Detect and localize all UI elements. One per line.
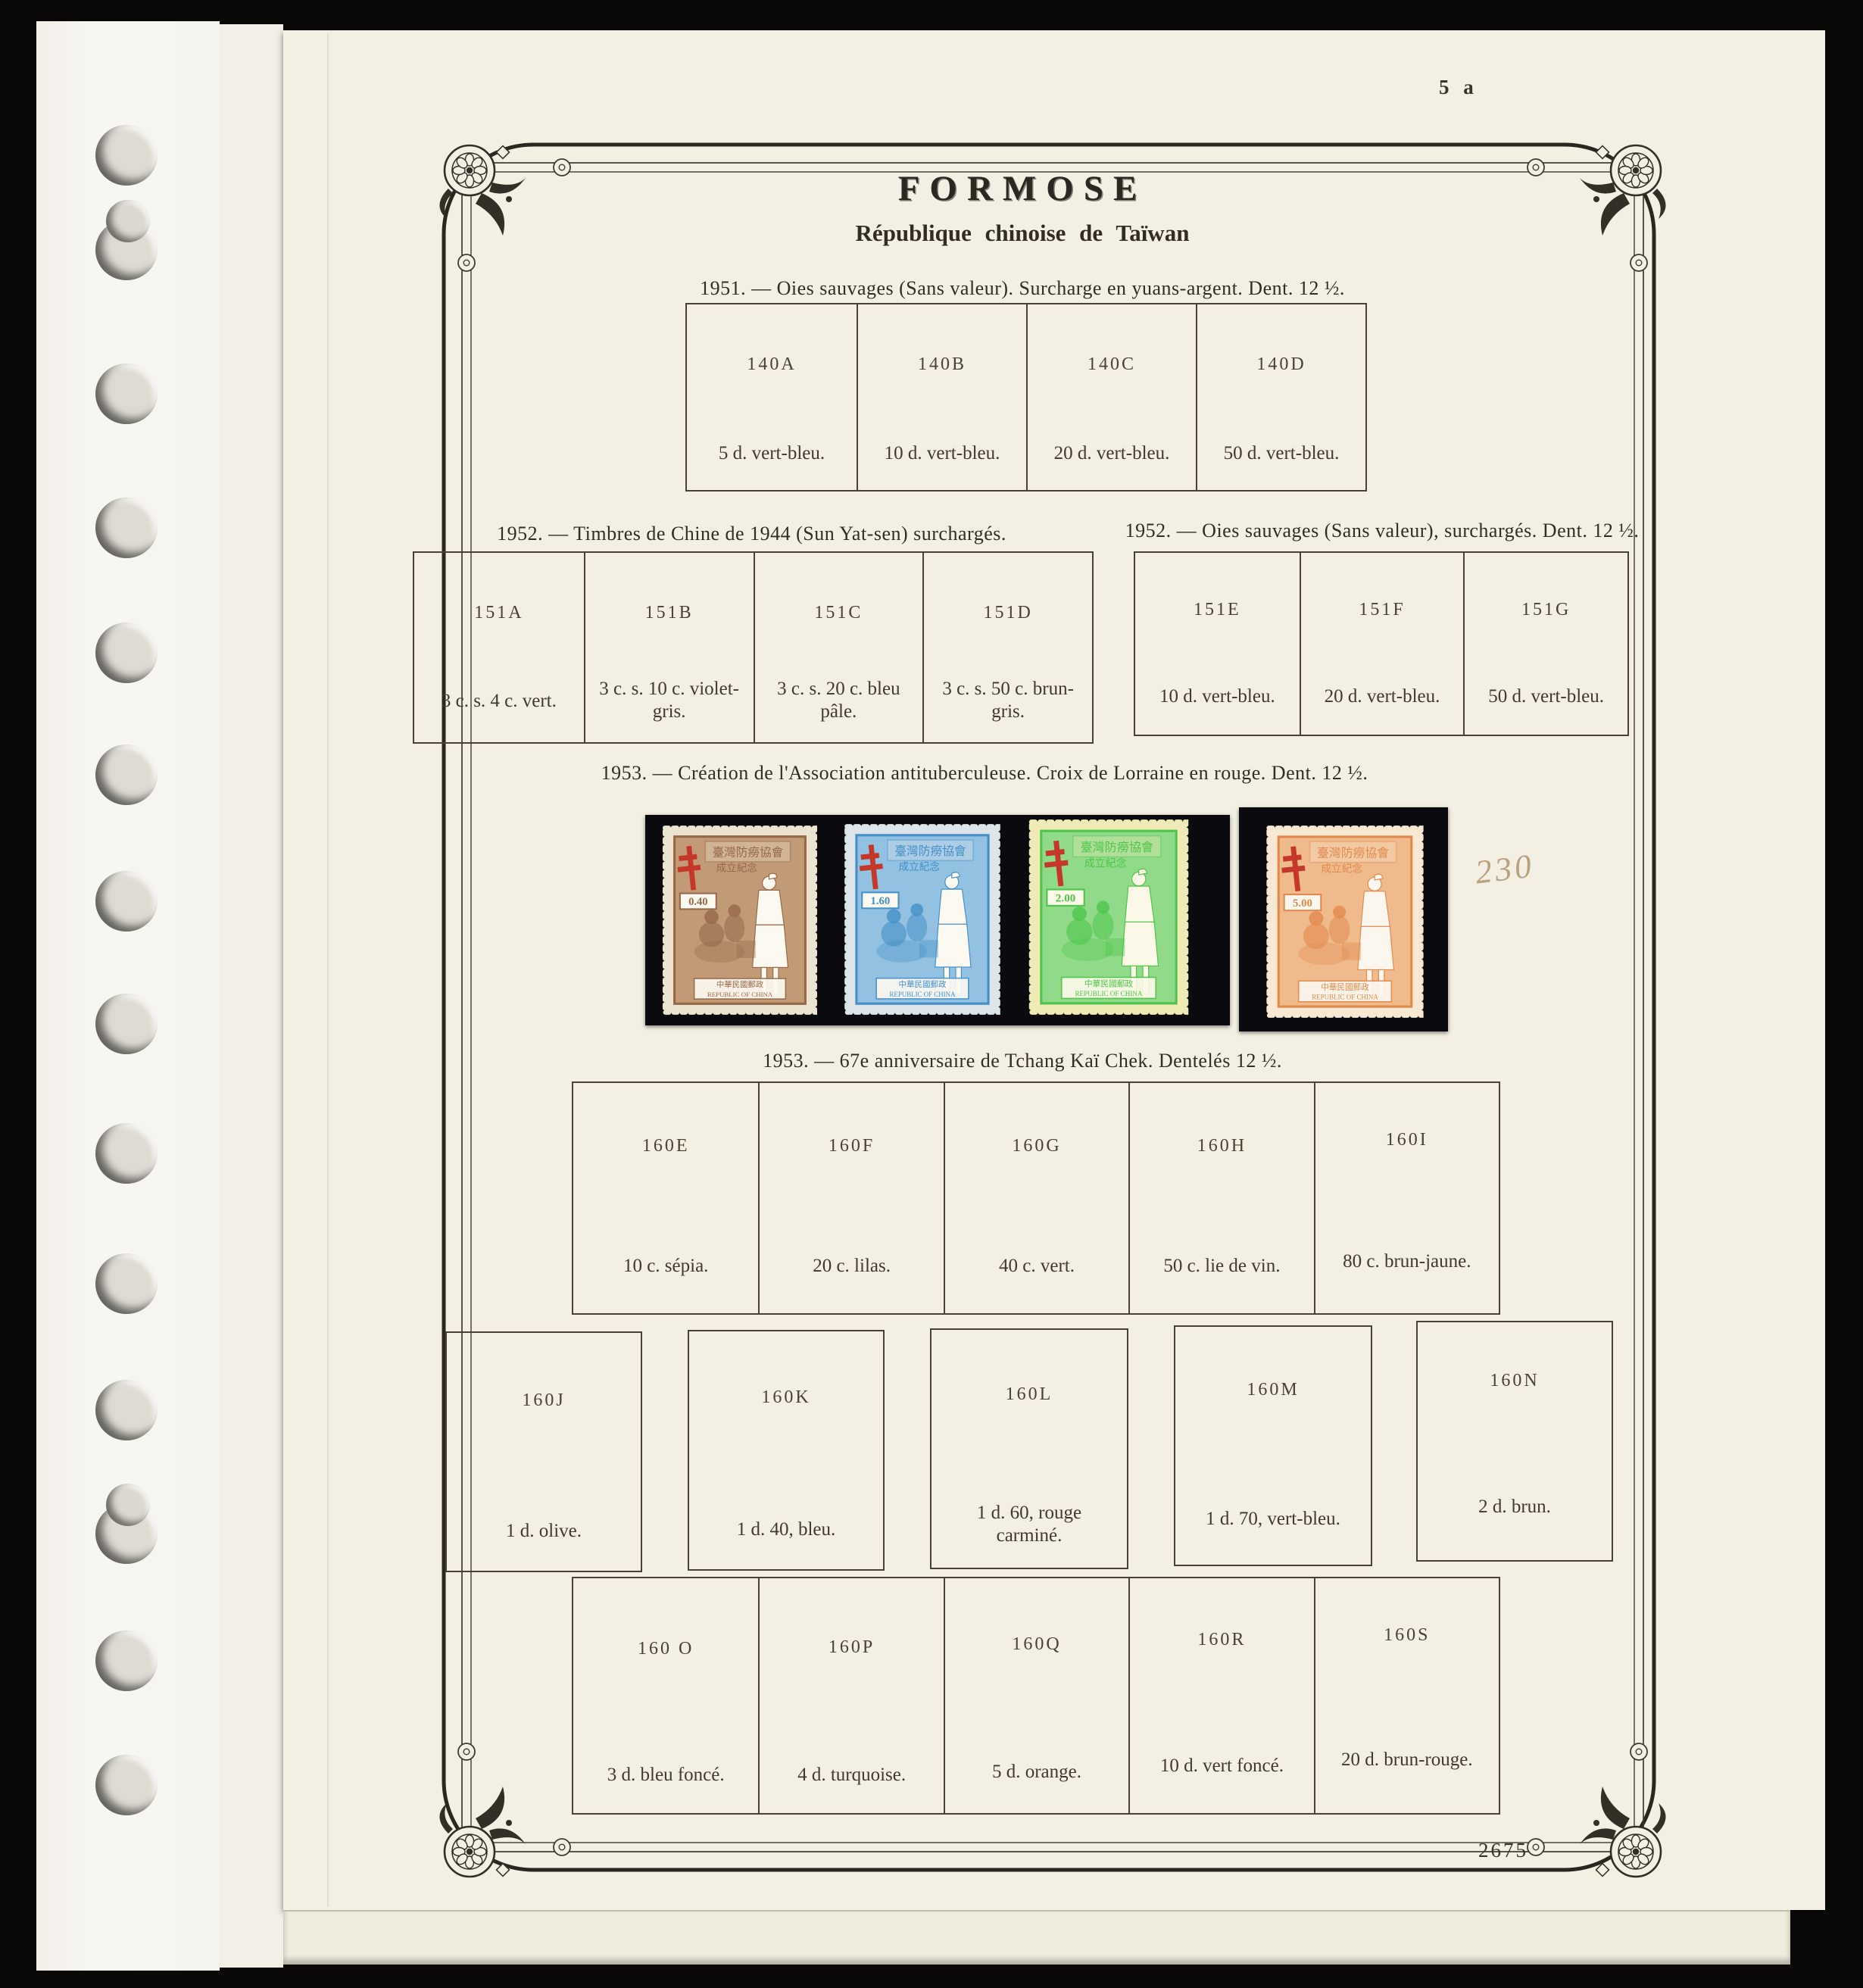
catalog-code: 160L: [931, 1384, 1127, 1405]
stamp-cell: 160I 80 c. brun-jaune.: [1314, 1083, 1499, 1313]
stamp-caption: 50 c. lie de vin.: [1143, 1255, 1301, 1278]
stamp-cell: 140D 50 d. vert-bleu.: [1196, 304, 1365, 490]
stamp-caption: 5 d. vert-bleu.: [699, 442, 845, 465]
stamp-box: 160K 1 d. 40, bleu.: [688, 1330, 885, 1571]
stamp-caption: 4 d. turquoise.: [772, 1764, 931, 1787]
stamp-box: 160L 1 d. 60, rouge carminé.: [930, 1328, 1128, 1569]
catalog-code: 160E: [573, 1136, 758, 1156]
stamp-caption: 50 d. vert-bleu.: [1476, 685, 1616, 708]
stamp-cell: 160E 10 c. sépia.: [573, 1083, 758, 1313]
stamp-inscription-top2: 成立紀念: [1321, 862, 1362, 874]
stamp-orange: 臺灣防癆協會 成立紀念 5.00 中華民國郵政 REPUBLIC OF CHI: [1263, 824, 1427, 1019]
catalog-code: 160G: [945, 1136, 1128, 1156]
page-title: FORMOSE: [454, 168, 1590, 209]
stamp-caption: 20 d. vert-bleu.: [1040, 442, 1184, 465]
catalog-code: 160F: [760, 1136, 943, 1156]
stamp-box: 160M 1 d. 70, vert-bleu.: [1174, 1325, 1372, 1566]
stamp-grid-1952-sunyatsen: 151A 3 c. s. 4 c. vert. 151B 3 c. s. 10 …: [413, 551, 1094, 744]
stamp-grid-1952-oies: 151E 10 d. vert-bleu. 151F 20 d. vert-bl…: [1134, 551, 1629, 736]
stamp-brown: 臺灣防癆協會 成立紀念 0.40 中華民國郵政 REPUBLIC OF CHI: [660, 824, 819, 1016]
stamp-caption: 3 d. bleu foncé.: [586, 1764, 745, 1787]
catalog-code: 151C: [755, 603, 923, 623]
stamp-cell: 160 O 3 d. bleu foncé.: [573, 1578, 758, 1813]
catalog-code: 160S: [1315, 1625, 1499, 1646]
plate-number: 2675: [1478, 1839, 1584, 1862]
catalog-code: 160N: [1418, 1371, 1612, 1391]
stamp-value: 1.60: [871, 895, 891, 907]
stamp-grid-1951: 140A 5 d. vert-bleu. 140B 10 d. vert-ble…: [685, 303, 1367, 492]
stamp-inscription-top: 臺灣防癆協會: [713, 846, 784, 860]
stamp-caption: 1 d. 40, bleu.: [703, 1518, 869, 1541]
stamp-caption: 80 c. brun-jaune.: [1328, 1250, 1486, 1273]
stamp-inscription-en: REPUBLIC OF CHINA: [1312, 994, 1378, 1001]
stamp-caption: 3 c. s. 10 c. violet-gris.: [597, 678, 741, 722]
corner-rosette-ornament: [439, 1787, 526, 1877]
section-header-1952-oies: 1952. — Oies sauvages (Sans valeur), sur…: [1091, 520, 1674, 542]
stamp-cell: 160R 10 d. vert foncé.: [1128, 1578, 1313, 1813]
border-bead: [458, 1743, 475, 1760]
stamp-inscription-cn: 中華民國郵政: [899, 979, 947, 989]
stamp-caption: 3 c. s. 50 c. brun-gris.: [936, 678, 1081, 722]
stamp-caption: 20 d. vert-bleu.: [1312, 685, 1453, 708]
stamp-cell: 160Q 5 d. orange.: [944, 1578, 1128, 1813]
stamp-inscription-en: REPUBLIC OF CHINA: [707, 991, 773, 998]
stamp-caption: 2 d. brun.: [1431, 1496, 1598, 1518]
stamp-caption: 5 d. orange.: [958, 1761, 1116, 1784]
border-bead: [458, 254, 475, 271]
stamp-caption: 10 d. vert foncé.: [1143, 1755, 1301, 1777]
stamp-caption: 20 c. lilas.: [772, 1255, 931, 1278]
stamp-inscription-top: 臺灣防癆協會: [894, 844, 966, 858]
stamp-cell: 160G 40 c. vert.: [944, 1083, 1128, 1313]
stamp-cell: 151E 10 d. vert-bleu.: [1135, 553, 1300, 735]
stamp-caption: 10 d. vert-bleu.: [1147, 685, 1287, 708]
catalog-code: 160Q: [945, 1634, 1128, 1655]
stamp-value: 2.00: [1056, 893, 1075, 905]
page-number: 5 a: [1439, 76, 1530, 99]
border-bead: [554, 1839, 570, 1855]
stamp-inscription-top2: 成立紀念: [716, 861, 758, 873]
stamp-cell: 160H 50 c. lie de vin.: [1128, 1083, 1313, 1313]
handwritten-note: 230: [1473, 846, 1537, 891]
catalog-code: 151A: [414, 603, 584, 623]
stamp-cell: 160P 4 d. turquoise.: [758, 1578, 943, 1813]
stamp-green: 臺灣防癆協會 成立紀念 2.00 中華民國郵政 REPUBLIC OF CHI: [1024, 818, 1194, 1016]
stamp-grid-1953-row3: 160 O 3 d. bleu foncé. 160P 4 d. turquoi…: [572, 1577, 1500, 1815]
stamp-inscription-en: REPUBLIC OF CHINA: [889, 991, 956, 998]
stamp-inscription-top: 臺灣防癆協會: [1317, 846, 1389, 860]
stamp-cell: 140C 20 d. vert-bleu.: [1026, 304, 1196, 490]
stamp-cell: 140A 5 d. vert-bleu.: [687, 304, 857, 490]
stamp-caption: 1 d. 70, vert-bleu.: [1189, 1508, 1357, 1531]
catalog-code: 160J: [447, 1390, 641, 1411]
section-header-1953-chiang: 1953. — 67e anniversaire de Tchang Kaï C…: [530, 1050, 1515, 1072]
stamp-inscription-top: 臺灣防癆協會: [1080, 841, 1153, 854]
border-bead: [1631, 254, 1647, 271]
catalog-code: 160R: [1130, 1630, 1313, 1650]
catalog-code: 151E: [1135, 600, 1300, 620]
catalog-code: 140C: [1028, 354, 1196, 375]
stamp-caption: 20 d. brun-rouge.: [1328, 1749, 1486, 1771]
catalog-code: 160M: [1175, 1380, 1371, 1400]
stamp-cell: 151D 3 c. s. 50 c. brun-gris.: [922, 553, 1092, 742]
stamp-caption: 10 d. vert-bleu.: [870, 442, 1015, 465]
page-subtitle: République chinoise de Taïwan: [454, 220, 1590, 247]
photo-of-album-page: { "page": { "page_number": "5 a", "plate…: [0, 0, 1863, 1988]
stamp-box: 160N 2 d. brun.: [1416, 1321, 1613, 1562]
stamp-cell: 160F 20 c. lilas.: [758, 1083, 943, 1313]
stamp-inscription-cn: 中華民國郵政: [716, 979, 764, 989]
stamp-caption: 1 d. 60, rouge carminé.: [945, 1502, 1113, 1546]
catalog-code: 160 O: [573, 1639, 758, 1659]
catalog-code: 160P: [760, 1637, 943, 1658]
catalog-code: 151G: [1465, 600, 1627, 620]
stamp-grid-1953-row1: 160E 10 c. sépia. 160F 20 c. lilas. 160G…: [572, 1081, 1500, 1315]
stamp-inscription-top2: 成立紀念: [1084, 857, 1127, 869]
stamp-cell: 151G 50 d. vert-bleu.: [1463, 553, 1627, 735]
stamp-inscription-top2: 成立紀念: [899, 860, 941, 872]
stamp-inscription-cn: 中華民國郵政: [1084, 978, 1134, 988]
stamp-cell: 151B 3 c. s. 10 c. violet-gris.: [584, 553, 754, 742]
stamp-inscription-cn: 中華民國郵政: [1321, 982, 1369, 992]
section-header-1952-sunyatsen: 1952. — Timbres de Chine de 1944 (Sun Ya…: [413, 523, 1091, 545]
stamp-box: 160J 1 d. olive.: [445, 1331, 642, 1572]
stamp-cell: 151C 3 c. s. 20 c. bleu pâle.: [754, 553, 923, 742]
catalog-code: 151F: [1301, 600, 1464, 620]
stamp-inscription-en: REPUBLIC OF CHINA: [1075, 990, 1143, 997]
catalog-code: 151D: [924, 603, 1092, 623]
catalog-code: 160H: [1130, 1136, 1313, 1156]
catalog-code: 140A: [687, 354, 857, 375]
stamp-caption: 40 c. vert.: [958, 1255, 1116, 1278]
stamp-value: 5.00: [1293, 897, 1312, 910]
border-bead: [1631, 1743, 1647, 1760]
section-header-1951: 1951. — Oies sauvages (Sans valeur). Sur…: [530, 277, 1515, 300]
stamp-cell: 151A 3 c. s. 4 c. vert.: [414, 553, 584, 742]
stamp-blue: 臺灣防癆協會 成立紀念 1.60 中華民國郵政 REPUBLIC OF CHI: [842, 822, 1003, 1016]
stamp-cell: 160S 20 d. brun-rouge.: [1314, 1578, 1499, 1813]
stamp-caption: 1 d. olive.: [460, 1520, 627, 1543]
catalog-code: 160I: [1315, 1130, 1499, 1150]
stamp-cell: 140B 10 d. vert-bleu.: [857, 304, 1026, 490]
stamp-caption: 10 c. sépia.: [586, 1255, 745, 1278]
catalog-code: 140B: [858, 354, 1026, 375]
stamp-value: 0.40: [688, 896, 707, 908]
catalog-code: 160K: [689, 1387, 883, 1408]
stamp-caption: 3 c. s. 20 c. bleu pâle.: [766, 678, 911, 722]
stamp-caption: 3 c. s. 4 c. vert.: [426, 690, 572, 713]
catalog-code: 140D: [1197, 354, 1365, 375]
section-header-1953-tb: 1953. — Création de l'Association antitu…: [492, 762, 1477, 785]
stamp-cell: 151F 20 d. vert-bleu.: [1300, 553, 1464, 735]
stamp-caption: 50 d. vert-bleu.: [1209, 442, 1354, 465]
catalog-code: 151B: [585, 603, 754, 623]
